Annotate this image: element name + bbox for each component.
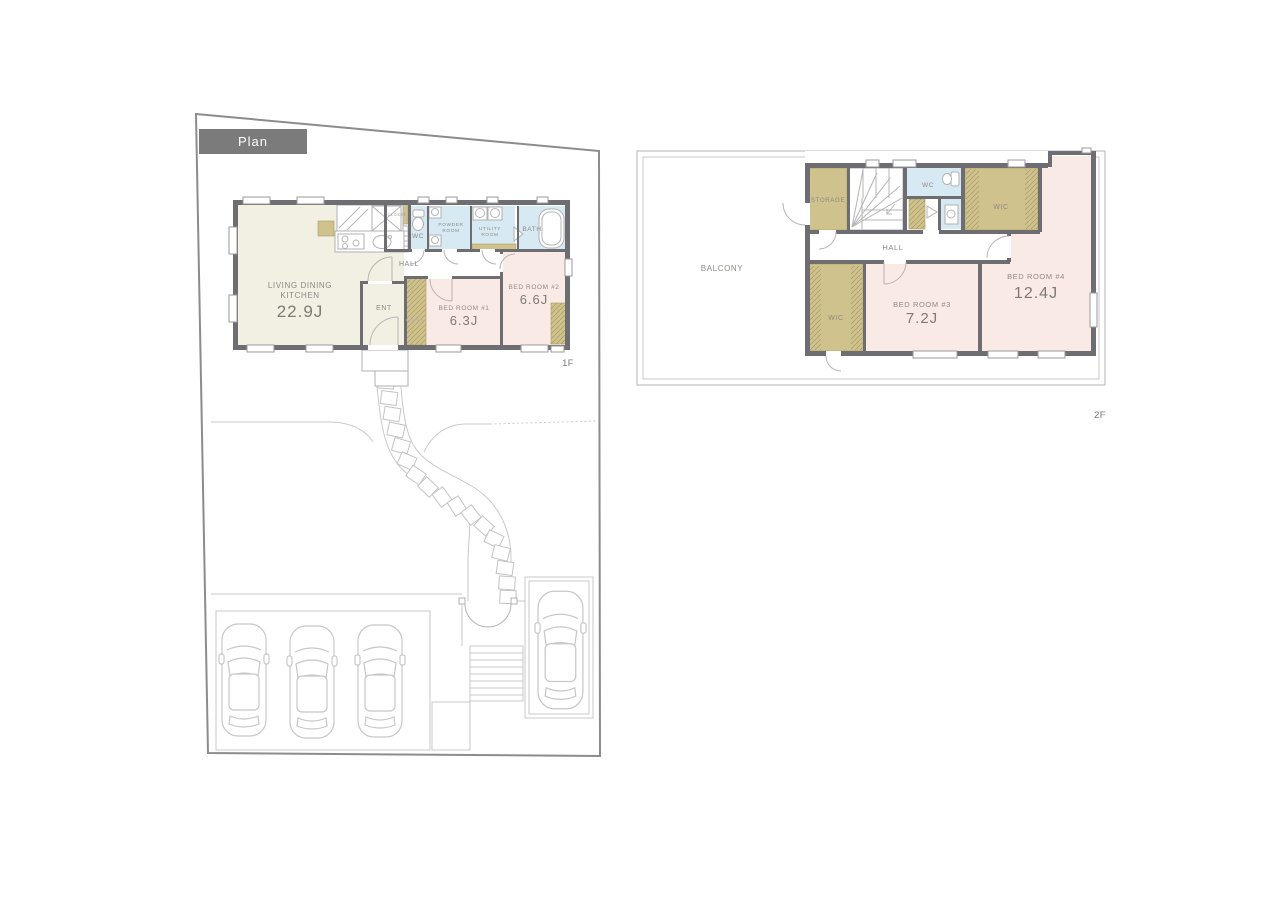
label-closet: CLOSET	[388, 213, 407, 217]
label-bed1-size: 6.3J	[450, 313, 479, 328]
plan-banner: Plan	[199, 129, 307, 154]
site-stairs	[432, 604, 523, 750]
toilet-icon	[951, 172, 959, 186]
stove-icon	[338, 234, 364, 249]
f2-stairs	[849, 168, 903, 230]
label-bed1: BED ROOM #1	[438, 305, 489, 312]
stepping-stones	[378, 375, 517, 604]
plan-drawing: LIVING DINING KITCHEN 22.9J HALL ENT WC …	[0, 0, 1280, 904]
entrance-porch	[362, 350, 408, 386]
floor1-tag: 1F	[562, 358, 574, 368]
room-bed4	[1050, 156, 1091, 168]
label-bed4-size: 12.4J	[1014, 285, 1058, 302]
label-bed2-size: 6.6J	[520, 292, 549, 307]
label-ldk-size: 22.9J	[277, 302, 324, 321]
toilet-icon	[413, 210, 424, 217]
floor-plan-page: LIVING DINING KITCHEN 22.9J HALL ENT WC …	[0, 0, 1280, 904]
label-powder-2: ROOM	[442, 228, 459, 234]
bathtub-icon	[539, 209, 564, 248]
car	[219, 624, 269, 736]
label-wc-2f: WC	[922, 182, 934, 189]
label-bed3: BED ROOM #3	[893, 300, 951, 309]
label-powder-1: POWDER	[438, 222, 463, 228]
label-bed3-size: 7.2J	[906, 310, 938, 327]
floor1-plan	[229, 197, 572, 352]
label-ldk-2: KITCHEN	[280, 291, 319, 300]
label-utility-1: UTILITY	[479, 226, 501, 232]
car	[535, 591, 586, 709]
label-bed4: BED ROOM #4	[1007, 272, 1065, 281]
label-storage: STORAGE	[811, 197, 845, 204]
label-bed2: BED ROOM #2	[508, 284, 559, 291]
label-ent: ENT	[376, 305, 392, 312]
label-ldk-1: LIVING DINING	[268, 281, 332, 290]
label-wc-1f: WC	[412, 233, 424, 240]
kitchen-island	[318, 221, 334, 236]
label-hall-1f: HALL	[399, 261, 419, 268]
label-wic-right: WIC	[993, 204, 1008, 211]
label-wic-left: WIC	[828, 315, 843, 322]
car	[355, 625, 405, 737]
label-bath: BATH	[522, 226, 541, 233]
label-balcony: BALCONY	[701, 264, 743, 273]
label-utility-2: ROOM	[481, 232, 498, 238]
label-hall-2f: HALL	[882, 243, 903, 252]
floor2-tag: 2F	[1094, 410, 1106, 421]
car	[287, 626, 337, 738]
